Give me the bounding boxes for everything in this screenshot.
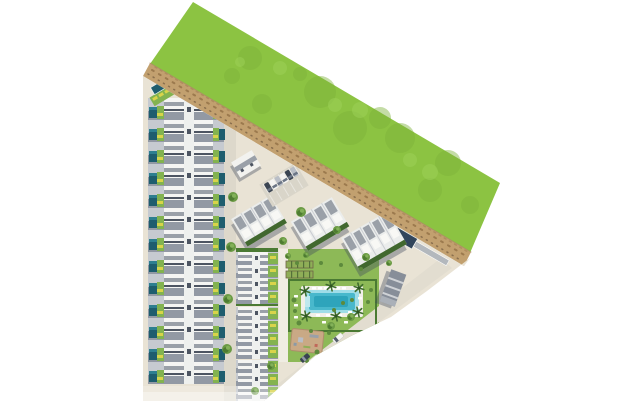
townhouse-block-mid-a [236,252,278,304]
rect [270,337,276,340]
rect [149,305,157,308]
rect [213,289,218,292]
rect [157,282,164,295]
rect [219,327,225,338]
rect [164,307,184,309]
rect [260,349,268,352]
rect [164,300,184,304]
rect [213,216,219,229]
rect [293,343,296,346]
rect [164,102,184,106]
rect [213,135,218,138]
rect [303,271,304,278]
rect [149,239,157,242]
rect [238,376,252,379]
rect [157,348,164,361]
rect [194,263,213,265]
rect [260,294,268,297]
rect [194,153,213,155]
rect [157,223,163,226]
rect [219,195,225,206]
rect [213,267,218,270]
rect [164,241,184,243]
rect [194,329,213,331]
rect [149,261,157,264]
rect [164,234,184,238]
rect [213,304,219,317]
rect [238,323,252,326]
rect [238,255,252,258]
aerial-site-plan-render [0,0,630,401]
rect [164,124,184,128]
rect [157,135,163,138]
rect [260,363,268,366]
rect [286,261,313,268]
rect [270,269,276,272]
rect [157,194,164,207]
rect [238,349,252,352]
rect [187,283,191,288]
rect [213,282,219,295]
rect [164,344,184,348]
rect [194,256,213,260]
rect [213,377,218,380]
pergola-row-1 [286,261,313,268]
rect [187,173,191,178]
rect [149,371,157,374]
rect [213,333,218,336]
rect [194,146,213,150]
rect [157,179,163,182]
rect [291,261,292,268]
rect [157,245,163,248]
rect [194,366,213,370]
rect [255,295,258,299]
rect [164,175,184,177]
rect [157,128,164,141]
rect [213,311,218,314]
rect [157,113,163,116]
rect [164,263,184,265]
rect [213,179,218,182]
rect [260,336,268,339]
rect [187,261,191,266]
rect [149,327,157,330]
rect [291,271,292,278]
rect [194,300,213,304]
rect [164,153,184,155]
rect [219,173,225,184]
rect [157,289,163,292]
rect [213,348,219,361]
rect [270,311,276,314]
rect [164,109,184,111]
rect [309,261,310,268]
rect [238,363,252,366]
rect [270,350,276,353]
rect [164,212,184,216]
rect [187,129,191,134]
rect [187,151,191,156]
rect [213,201,218,204]
rect [194,131,213,133]
rect [219,371,225,382]
rect [213,355,218,358]
rect [270,295,276,298]
rect [187,107,191,112]
rect [219,283,225,294]
rect [255,256,258,260]
rect [187,305,191,310]
rect [260,323,268,326]
rect [255,377,258,381]
rect [219,217,225,228]
rect [270,324,276,327]
rect [213,223,218,226]
rect [164,329,184,331]
rect [260,376,268,379]
rect [194,197,213,199]
rect [164,197,184,199]
rect [260,310,268,313]
rect [286,271,313,278]
rect [303,261,304,268]
rect [219,239,225,250]
rect [187,327,191,332]
rect [238,294,252,297]
rect [260,281,268,284]
rect [219,305,225,316]
rect [213,260,219,273]
rect [187,195,191,200]
rect [255,324,258,328]
rect [187,217,191,222]
rect [157,355,163,358]
rect [238,281,252,284]
pergola-row-2 [286,271,313,278]
rect [213,194,219,207]
rect [157,201,163,204]
rect [255,282,258,286]
rect [164,278,184,282]
rect [255,364,258,368]
rect [149,129,157,132]
rect [194,373,213,375]
rect [238,310,252,313]
rect [157,267,163,270]
rect [149,283,157,286]
rect [157,216,164,229]
site-plan-canvas [0,0,630,401]
rect [194,322,213,326]
rect [164,131,184,133]
rect [157,106,164,119]
rect [194,190,213,194]
rect [164,168,184,172]
rect [255,311,258,315]
rect [157,370,164,383]
rect [194,278,213,282]
rect [194,124,213,128]
rect [213,238,219,251]
rect [149,217,157,220]
rect [164,219,184,221]
rect [213,370,219,383]
rect [157,238,164,251]
lagoon-shelf [305,296,310,307]
townhouse-block-mid-b [236,307,278,359]
rect [213,128,219,141]
rect [157,326,164,339]
rect [255,337,258,341]
rect [149,349,157,352]
rect [194,241,213,243]
rect [157,150,164,163]
rect [260,255,268,258]
rect [194,307,213,309]
rect [164,285,184,287]
rect [164,146,184,150]
rect [164,190,184,194]
rect [255,350,258,354]
hedge-strip-a [236,248,278,252]
rect [164,373,184,375]
rect [194,344,213,348]
rect [213,172,219,185]
rect [194,285,213,287]
rect [238,336,252,339]
rect [270,377,276,380]
rect [213,157,218,160]
rect [194,212,213,216]
rect [187,371,191,376]
rect [194,175,213,177]
rect [157,157,163,160]
rect [260,268,268,271]
rect [149,173,157,176]
rect [297,271,298,278]
rect [149,107,157,110]
rect [157,311,163,314]
rect [149,195,157,198]
rect [270,282,276,285]
rect [164,351,184,353]
rect [187,239,191,244]
rect [194,351,213,353]
rect [219,151,225,162]
rect [187,349,191,354]
rect [255,269,258,273]
rect [213,326,219,339]
rect [164,322,184,326]
rect [164,256,184,260]
playground [290,328,324,353]
rect [157,377,163,380]
rect [219,261,225,272]
townhouse-column-west [148,98,225,384]
rect [194,219,213,221]
rect [149,151,157,154]
rect [194,234,213,238]
rect [238,268,252,271]
rect [213,150,219,163]
rect [298,337,303,342]
rect [157,172,164,185]
rect [194,168,213,172]
rect [157,333,163,336]
rect [219,129,225,140]
rect [157,304,164,317]
rect [270,256,276,259]
rect [309,271,310,278]
rect [290,328,324,353]
rect [314,344,317,347]
rect [164,366,184,370]
rect [213,245,218,248]
rect [157,260,164,273]
